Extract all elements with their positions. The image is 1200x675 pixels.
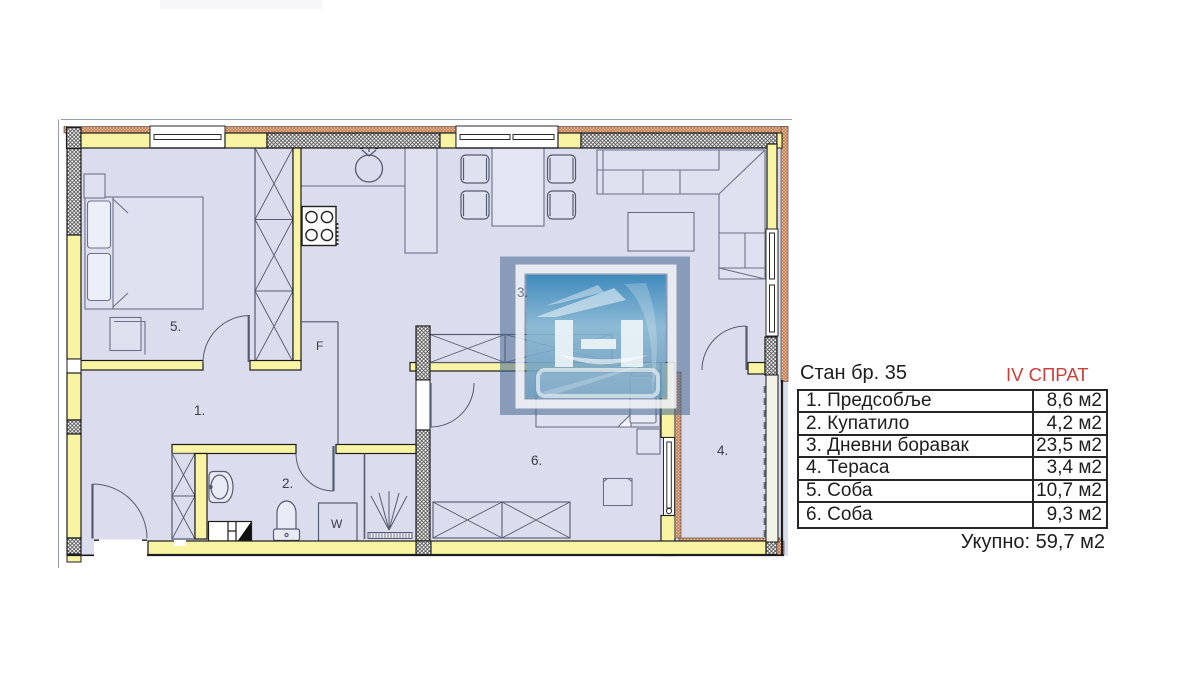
svg-text:2.: 2. (282, 476, 293, 491)
svg-text:4.: 4. (717, 443, 728, 458)
svg-text:1.: 1. (194, 403, 205, 418)
svg-text:6.: 6. (531, 453, 542, 468)
svg-text:F: F (316, 339, 323, 353)
svg-text:5.: 5. (170, 319, 181, 334)
svg-text:W: W (331, 517, 343, 531)
svg-text:3.: 3. (517, 285, 528, 300)
